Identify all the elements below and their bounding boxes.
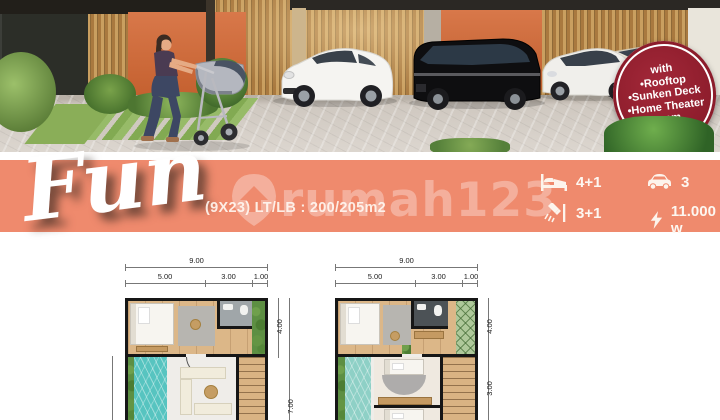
dim-depth: 4.00 <box>275 319 284 334</box>
shower-icon <box>542 203 568 223</box>
power-value: 11.000 w <box>671 203 720 237</box>
dim-total-width: 9.00 <box>125 256 268 265</box>
fern-plant <box>604 116 714 152</box>
bedrooms-value: 4+1 <box>576 174 601 191</box>
floorplan-1: 9.00 5.00 3.00 1.00 4.00 7.00 <box>110 252 315 420</box>
stairs <box>239 357 265 420</box>
bathrooms-stat: 3+1 <box>542 203 601 223</box>
dim-segment: 5.00 <box>125 272 205 281</box>
garage-stat: 3 <box>646 173 689 191</box>
power-stat: 11.000 w <box>650 203 720 237</box>
bed <box>130 303 174 345</box>
floorplan-2: 9.00 5.00 3.00 1.00 4.00 3.00 <box>320 252 525 420</box>
floorplan-1-body <box>125 298 268 420</box>
dim-segment: 5.00 <box>335 272 415 281</box>
car-icon <box>646 173 673 191</box>
bathrooms-value: 3+1 <box>576 205 601 222</box>
lot-size-spec: (9X23) LT/LB : 200/205m2 <box>205 200 386 216</box>
pool <box>131 357 167 420</box>
dim-total-width: 9.00 <box>335 256 478 265</box>
garden-void <box>456 301 475 354</box>
bed <box>384 359 424 375</box>
bed-icon <box>540 173 568 192</box>
bed <box>340 303 380 345</box>
dim-depth: 4.00 <box>485 319 494 334</box>
dim-depth: 7.00 <box>286 399 295 414</box>
property-flyer: with •Rooftop •Sunken Deck •Home Theater… <box>0 0 720 420</box>
exterior-render-photo: with •Rooftop •Sunken Deck •Home Theater… <box>0 0 720 152</box>
bedrooms-stat: 4+1 <box>540 173 601 192</box>
white-sports-car <box>282 49 393 107</box>
floorplan-2-body <box>335 298 478 420</box>
dim-segment: 3.00 <box>205 272 252 281</box>
dim-depth: 3.00 <box>485 381 494 396</box>
garage-value: 3 <box>681 174 689 191</box>
black-mpv-car <box>414 39 540 110</box>
stairs <box>443 357 475 420</box>
power-icon <box>650 209 663 231</box>
planter <box>252 301 265 354</box>
bed <box>384 409 424 420</box>
unit-type-title: Fun <box>17 127 211 235</box>
dim-segment: 3.00 <box>415 272 462 281</box>
sofa <box>180 367 226 379</box>
